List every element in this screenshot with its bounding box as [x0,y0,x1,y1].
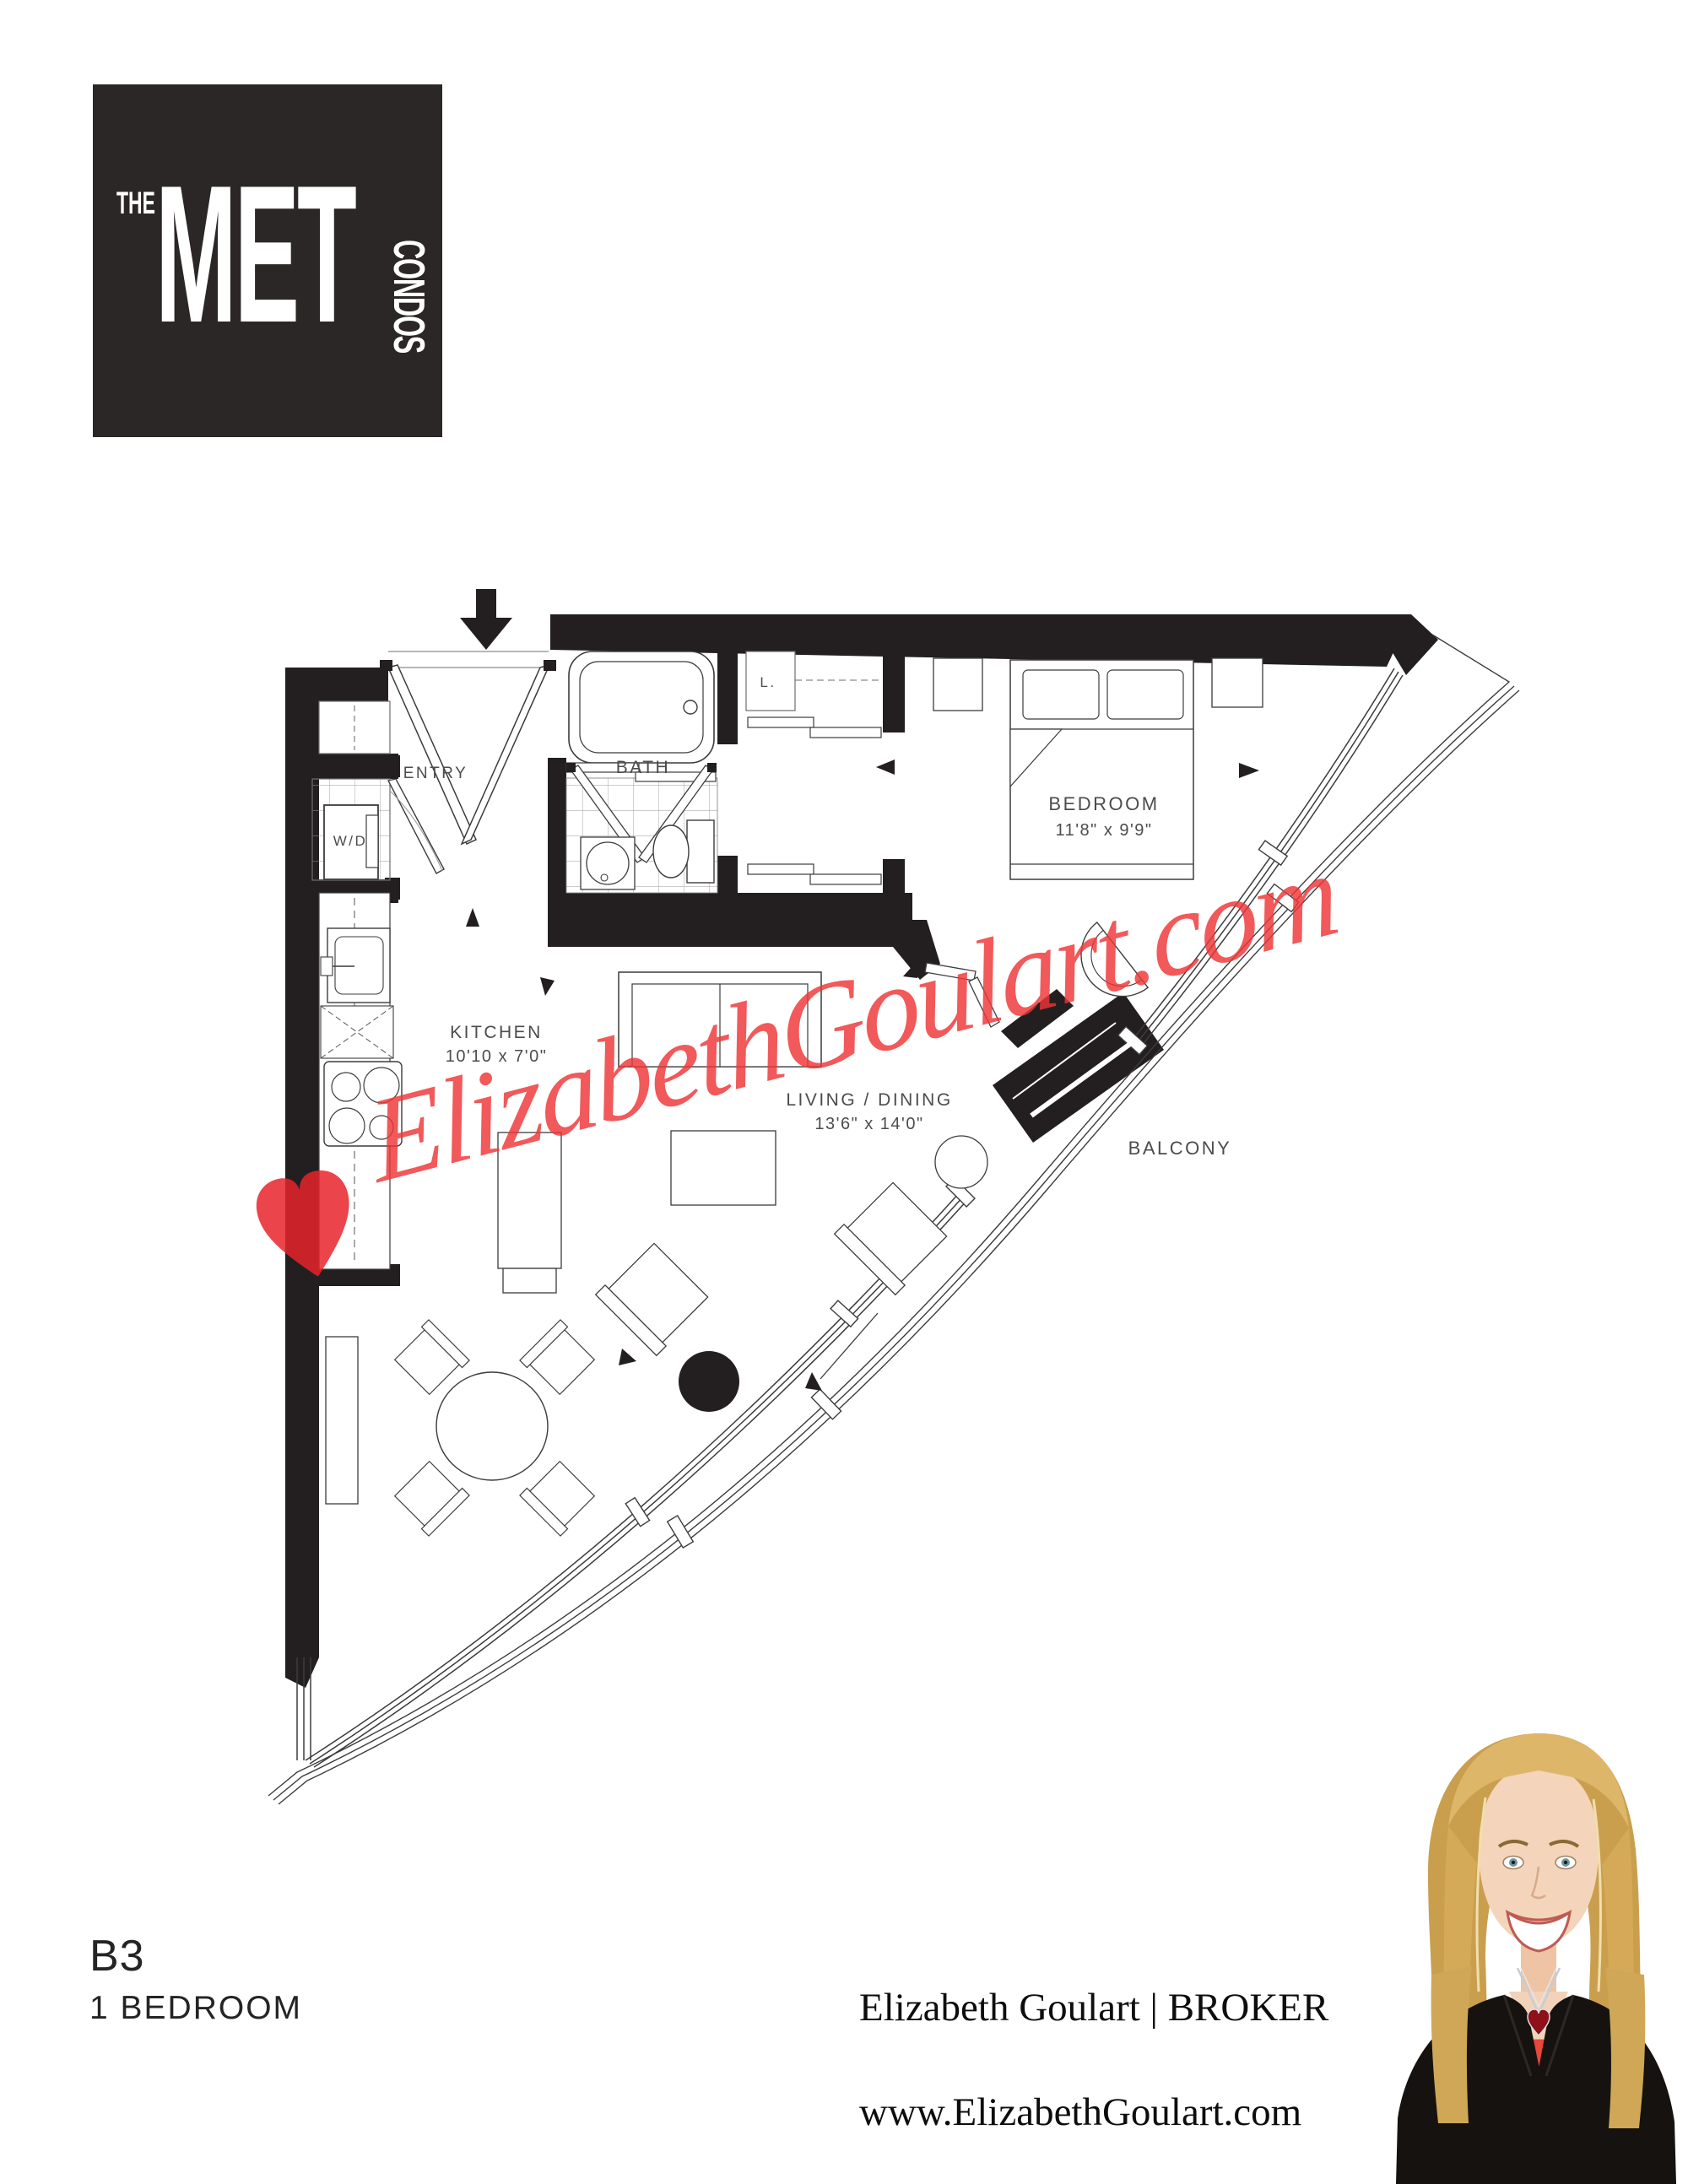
shelf-unit [326,1337,358,1504]
dishwasher [321,1006,393,1058]
broker-name: Elizabeth Goulart | BROKER [859,1985,1328,2030]
entry-door-leaf [462,665,549,844]
bath-bottom-wall [548,893,912,947]
bath-label: BATH [616,758,670,777]
arrow-icon [619,1349,636,1365]
linen-label: L. [760,674,776,690]
column [679,1351,739,1412]
face [1479,1765,1599,1944]
side-table [935,1136,987,1188]
entry-direction-arrow-icon [460,589,512,650]
arrow-icon [805,1372,822,1391]
arrow-icon [540,977,555,996]
hair-over-shoulder [1431,1966,1472,2123]
bedroom-dims: 11'8" x 9'9" [1055,821,1152,840]
kitchen-sink [321,928,390,1003]
broker-portrait [1396,1733,1676,2184]
wd-label: W/D [333,833,368,849]
bed [1010,660,1193,879]
dining-table [436,1372,548,1480]
living-dims: 13'6" x 14'0" [814,1115,923,1133]
balcony-label: BALCONY [1128,1138,1232,1159]
entry-label: ENTRY [403,765,468,782]
arrow-icon [1239,763,1259,778]
left-wall-cut [285,1657,319,1688]
laundry-closet [312,779,444,880]
broker-website: www.ElizabethGoulart.com [859,2089,1301,2135]
unit-code: B3 [89,1931,145,1981]
armchair [835,1179,950,1295]
bathroom-sink [581,837,635,889]
closet-door-leaf [388,779,444,873]
coffee-table [671,1131,776,1205]
bedroom-left-wall [883,650,905,733]
hair-over-shoulder [1605,1968,1645,2128]
unit-type: 1 BEDROOM [89,1990,302,2027]
armchair [596,1240,711,1355]
dining-table-set [392,1320,598,1536]
bedroom-label: BEDROOM [1048,793,1159,814]
entry-top-stub [285,668,388,701]
entry-door-leaf [388,665,476,844]
arrow-icon [876,760,895,775]
broker-photo [1384,1722,1688,2184]
bath-right-wall [717,650,738,744]
bathtub [569,651,714,763]
arrow-icon [466,908,479,927]
nightstand [933,658,982,711]
nightstand [1212,658,1263,707]
